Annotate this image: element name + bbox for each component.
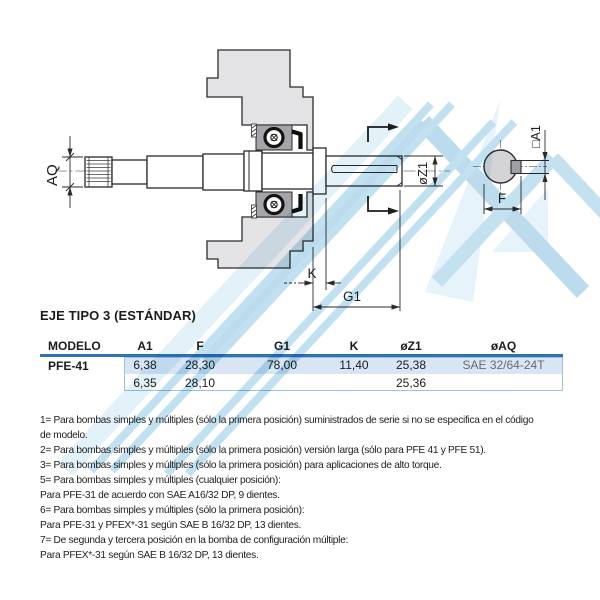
label-g1: G1 xyxy=(343,289,361,304)
col-header-aq: øAQ xyxy=(444,339,563,353)
note-line: de modelo. xyxy=(40,428,533,443)
bearing-ball-lower xyxy=(265,196,283,214)
seal-upper xyxy=(292,132,301,150)
cell-z1: 25,38 xyxy=(378,357,444,374)
shaft xyxy=(85,148,402,194)
note-line: 3= Para bombas simples y múltiples (sólo… xyxy=(40,458,533,473)
circlip-lower xyxy=(252,205,257,218)
dim-aq xyxy=(62,136,83,208)
table-row: PFE-41 6,38 28,30 78,00 11,40 25,38 SAE … xyxy=(40,357,563,374)
label-aq: AQ xyxy=(44,164,61,186)
cell-aq: SAE 32/64-24T xyxy=(444,357,563,374)
cell-z1: 25,36 xyxy=(378,376,444,390)
cell-g1: 78,00 xyxy=(234,357,330,374)
note-line: Para PFE-31 de acuerdo con SAE A16/32 DP… xyxy=(40,488,533,503)
section-arrow-top xyxy=(368,123,399,142)
note-line: 5= Para bombas simples y múltiples (cual… xyxy=(40,473,533,488)
seal-lower xyxy=(292,194,301,212)
col-header-modelo: MODELO xyxy=(40,339,124,353)
note-line: Para PFE-31 y PFEX*-31 según SAE B 16/32… xyxy=(40,518,533,533)
circlip-upper xyxy=(252,124,257,137)
col-header-k: K xyxy=(330,339,378,353)
col-header-z1: øZ1 xyxy=(378,339,444,353)
spec-table: MODELO A1 F G1 K øZ1 øAQ PFE-41 6,38 28,… xyxy=(40,337,563,391)
cell-a1: 6,38 xyxy=(124,357,166,374)
col-header-g1: G1 xyxy=(234,339,330,353)
key xyxy=(511,161,521,174)
note-line: 1= Para bombas simples y múltiples (sólo… xyxy=(40,413,533,428)
catalog-page: AQ øZ1 K G1 xyxy=(0,0,600,600)
cell-f: 28,30 xyxy=(166,357,234,374)
cell-a1: 6,35 xyxy=(124,376,166,390)
note-line: 2= Para bombas simples y múltiples (sólo… xyxy=(40,443,533,458)
col-header-a1: A1 xyxy=(124,339,166,353)
note-line: 7= De segunda y tercera posición en la b… xyxy=(40,533,533,548)
label-a1: □A1 xyxy=(529,125,543,148)
bearing-ball-upper xyxy=(265,129,283,147)
cell-modelo: PFE-41 xyxy=(40,359,124,373)
section-arrow-bottom xyxy=(368,196,399,215)
label-k: K xyxy=(307,266,316,281)
cell-k: 11,40 xyxy=(330,357,378,374)
label-f: F xyxy=(498,191,506,206)
table-header-row: MODELO A1 F G1 K øZ1 øAQ xyxy=(40,337,563,354)
footnotes: 1= Para bombas simples y múltiples (sólo… xyxy=(40,413,533,563)
cell-f: 28,10 xyxy=(166,376,234,390)
col-header-f: F xyxy=(166,339,234,353)
page-title: EJE TIPO 3 (ESTÁNDAR) xyxy=(40,308,196,323)
note-line: Para PFEX*-31 según SAE B 16/32 DP, 13 d… xyxy=(40,548,533,563)
table-row: 6,35 28,10 25,36 xyxy=(40,374,563,391)
technical-drawing: AQ øZ1 K G1 xyxy=(0,0,600,330)
note-line: 6= Para bombas simples y múltiples (sólo… xyxy=(40,503,533,518)
label-z1: øZ1 xyxy=(415,162,430,185)
